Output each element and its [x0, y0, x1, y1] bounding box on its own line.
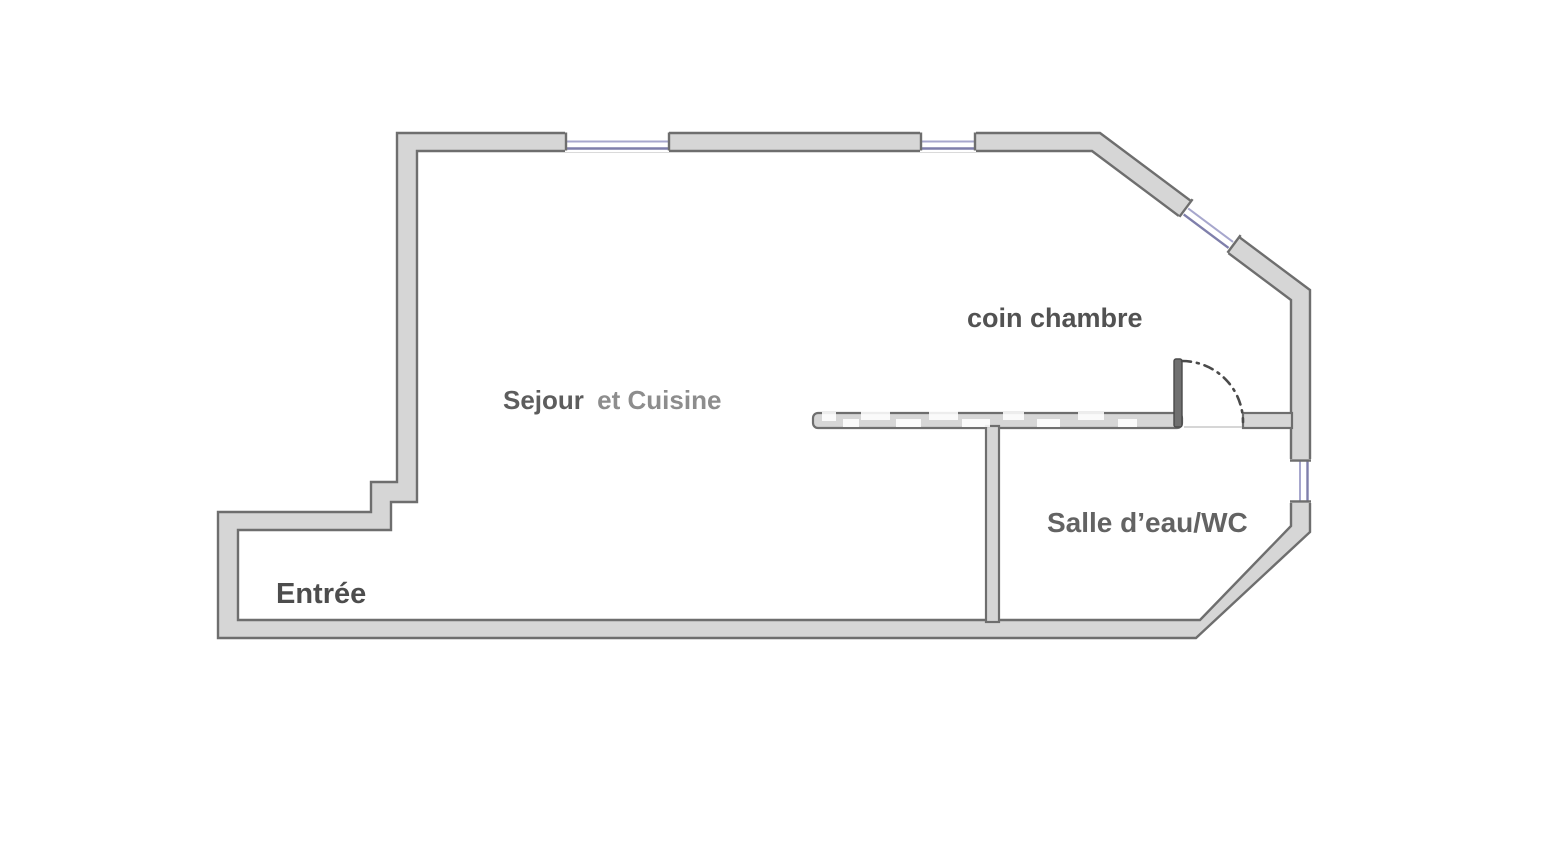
watermark-patch: [843, 419, 859, 427]
partition-wall-door-stub: [1243, 413, 1292, 428]
room-label-living: Sejour et Cuisine: [503, 385, 721, 415]
watermark-patch: [1003, 412, 1024, 420]
room-label-bedroom: coin chambre: [967, 303, 1143, 333]
room-label-entrance: Entrée: [276, 578, 366, 610]
floorplan-drawing: Sejour et Cuisine coin chambre Salle d’e…: [0, 0, 1564, 852]
watermark-patch: [1037, 419, 1060, 427]
floorplan-canvas: Sejour et Cuisine coin chambre Salle d’e…: [0, 0, 1564, 852]
door-leaf: [1174, 359, 1182, 427]
watermark-patch: [861, 411, 890, 420]
watermark-patch: [962, 419, 990, 427]
watermark-patch: [896, 419, 921, 427]
watermark-patch: [1078, 412, 1104, 420]
watermark-patch: [1118, 419, 1137, 427]
partition-wall-bathroom: [986, 426, 999, 622]
watermark-patch: [822, 412, 836, 421]
room-label-living-suffix: et Cuisine: [597, 385, 721, 415]
background: [0, 0, 1564, 852]
room-label-bathroom: Salle d’eau/WC: [1047, 507, 1248, 538]
watermark-patch: [929, 411, 958, 420]
room-label-living-main: Sejour: [503, 385, 584, 415]
